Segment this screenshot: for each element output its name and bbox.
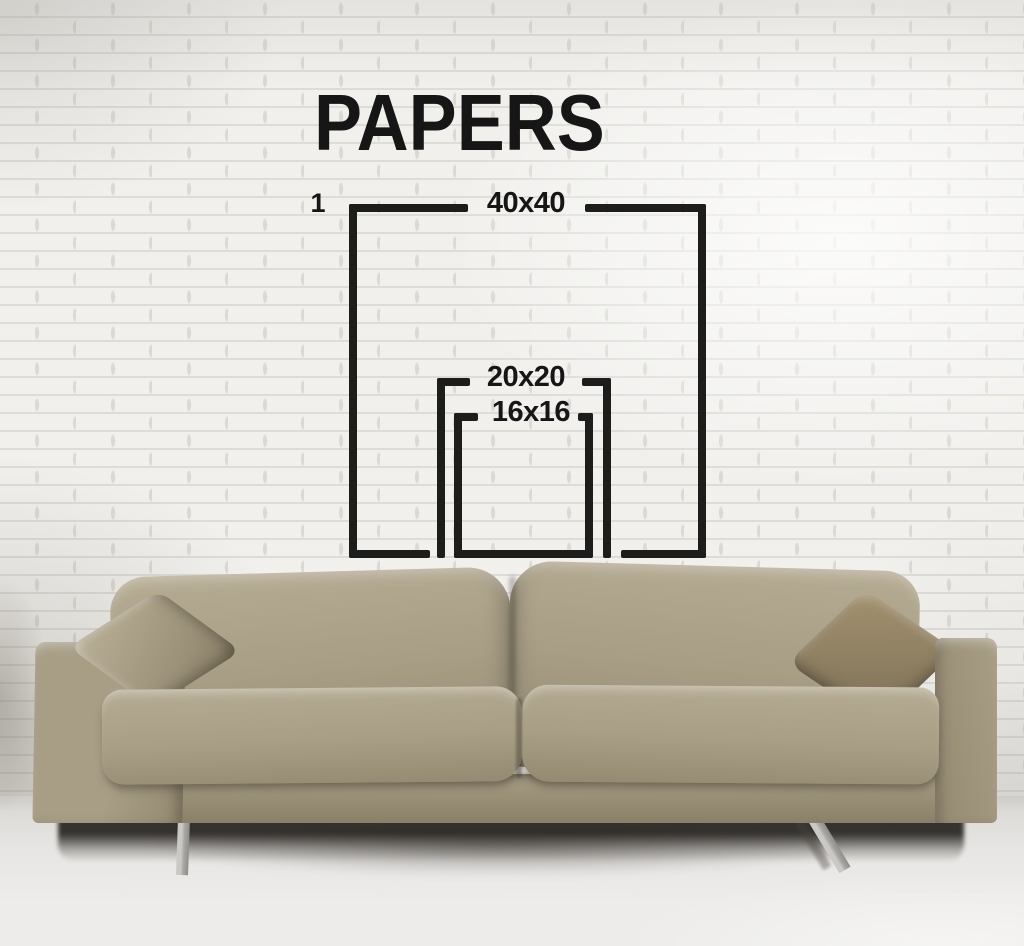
frame-segment (585, 413, 593, 558)
frame-segment (585, 204, 706, 212)
size-label-16x16: 16x16 (461, 398, 601, 427)
sofa (30, 558, 995, 893)
frame-segment (454, 550, 593, 558)
sofa-seat-cushion-right (522, 685, 940, 785)
frame-segment (454, 413, 462, 558)
size-index-label: 1 (303, 190, 333, 217)
scene: PAPERS 1 40x40 20x20 16x16 (0, 0, 1024, 946)
sofa-seat-cushion-seam (516, 698, 522, 778)
frame-segment (437, 378, 445, 558)
frame-segment (603, 378, 611, 558)
frame-segment (698, 204, 706, 558)
frame-segment (621, 550, 706, 558)
frame-segment (349, 550, 430, 558)
size-label-40x40: 40x40 (456, 189, 596, 218)
frame-segment (349, 204, 468, 212)
frame-segment (349, 204, 357, 558)
size-label-20x20: 20x20 (456, 363, 596, 392)
sofa-seat-cushion-left (102, 686, 523, 785)
sofa-arm-right (935, 638, 997, 823)
